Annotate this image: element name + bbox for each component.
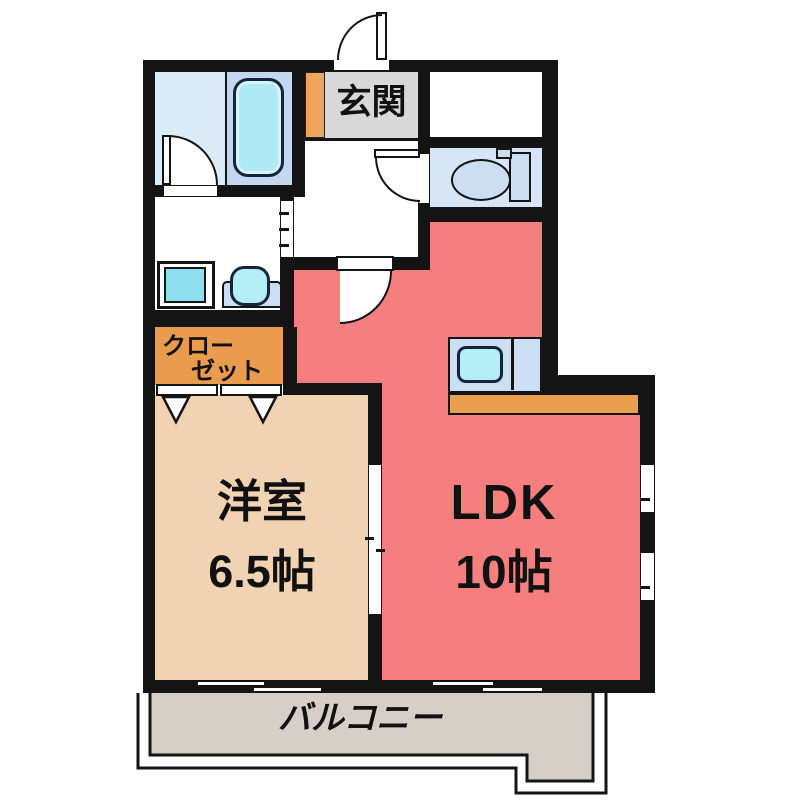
genkan-hall-line [305,138,418,141]
wall-step [542,375,655,393]
closet-label-line2: ゼット [191,359,281,384]
closet-label-line1: クロー [162,334,252,359]
closet-swing-triangle [250,397,276,422]
washroom-door-tick [279,228,289,231]
kitchen-counter [448,393,640,415]
toilet-tank [509,152,531,202]
washing-machine-icon [157,261,215,309]
wall-toilet-top [418,137,553,148]
western-room-floor [155,395,368,682]
washing-machine-drum [164,267,206,303]
side-window-icon [641,553,654,600]
bathroom-door-leaf [162,135,171,185]
wall-right-upper [542,60,558,393]
sliding-window-icon [432,681,494,686]
sliding-window-icon [482,687,543,692]
wall-toilet-bottom [418,207,553,222]
toilet-door-opening [419,154,429,203]
toilet-button [496,148,512,159]
storage-room-floor [430,70,542,137]
entrance-opening [334,60,389,72]
closet-door-panel [220,384,282,396]
door-swing-arc-icon [337,14,382,60]
bathroom-door-opening [164,186,217,196]
kitchen-sink-icon [457,346,503,383]
side-window-icon [641,465,654,512]
washroom-door-tick [279,212,289,215]
western-room-size: 6.5帖 [155,548,369,595]
washroom-door-tick [279,244,289,247]
ldk-size: 10帖 [395,548,613,596]
closet-door-panel [156,384,218,396]
ldk-label: LDK [395,478,613,529]
ldk-floor-main [382,383,640,682]
sliding-window-icon [197,681,265,686]
toilet-door-leaf [374,149,420,158]
western-room-label: 洋室 [155,478,369,525]
sliding-door-tick [376,549,385,552]
sliding-door-tick [365,537,374,540]
window-sash-tick [641,498,650,501]
toilet-icon [451,159,511,201]
wall-right-lower [640,375,655,693]
wall-closet-right [283,327,297,395]
wall-washroom-bottom [143,310,293,327]
folding-door-triangle-icon [150,396,280,426]
balcony-label: バルコニー [160,701,560,736]
window-sash-tick [641,586,650,589]
kitchen-unit-divider [511,339,514,390]
washbasin-icon [230,266,270,306]
bathtub-icon [233,78,284,177]
wall-left [143,60,155,693]
ldk-door-leaf [336,256,394,271]
wall-mid-upper [292,60,305,197]
floor-plan-canvas: 玄関 クロー ゼット 洋室 6.5帖 LDK 10帖 バルコニー [0,0,800,800]
sliding-window-icon [253,687,322,692]
genkan-label: 玄関 [323,85,420,122]
closet-swing-triangle [163,397,189,422]
genkan-step [305,72,325,138]
